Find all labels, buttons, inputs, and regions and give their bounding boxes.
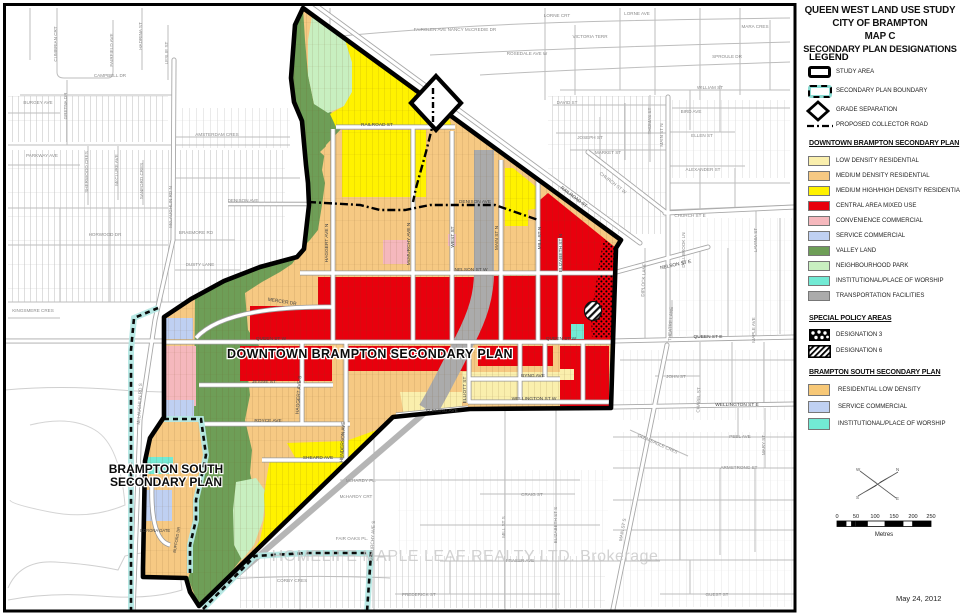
svg-text:KINGSMERE CRES: KINGSMERE CRES bbox=[12, 308, 54, 313]
svg-text:HADRINA ST: HADRINA ST bbox=[138, 22, 143, 50]
svg-text:N: N bbox=[896, 467, 899, 472]
svg-text:SHERWOOD CRES: SHERWOOD CRES bbox=[84, 151, 89, 193]
svg-text:FAIRFIELD AVE: FAIRFIELD AVE bbox=[109, 33, 114, 66]
svg-text:HORWOOD DR: HORWOOD DR bbox=[89, 232, 123, 237]
svg-text:QUEEN ST W: QUEEN ST W bbox=[256, 336, 287, 342]
svg-text:AMSTERDAM CRES: AMSTERDAM CRES bbox=[195, 132, 238, 137]
svg-text:CHURCH ST E: CHURCH ST E bbox=[674, 213, 705, 218]
svg-text:BIRD AVE: BIRD AVE bbox=[681, 109, 702, 114]
svg-text:MAIN ST N: MAIN ST N bbox=[494, 225, 500, 250]
svg-text:NELSON ST W: NELSON ST W bbox=[455, 267, 488, 273]
svg-text:McHARDY PL.: McHARDY PL. bbox=[346, 478, 376, 483]
svg-text:ELLEN ST: ELLEN ST bbox=[691, 133, 713, 138]
svg-text:WILLIAM ST: WILLIAM ST bbox=[697, 85, 723, 90]
svg-text:MARY ST: MARY ST bbox=[761, 435, 766, 455]
svg-text:LORNE CRT: LORNE CRT bbox=[544, 13, 571, 18]
svg-text:BYNG AVE: BYNG AVE bbox=[521, 373, 545, 379]
svg-text:SPROULE DR: SPROULE DR bbox=[712, 54, 743, 59]
svg-text:WELLINGTON ST E: WELLINGTON ST E bbox=[715, 402, 759, 408]
svg-text:MARKET ST: MARKET ST bbox=[595, 150, 621, 155]
svg-text:ELLIOTT ST: ELLIOTT ST bbox=[462, 377, 468, 404]
svg-text:MAIN ST N: MAIN ST N bbox=[659, 123, 664, 146]
svg-text:ROYCE AVE: ROYCE AVE bbox=[254, 418, 281, 424]
svg-text:MARA CRES: MARA CRES bbox=[741, 24, 768, 29]
svg-text:HOMELIFE MAPLE LEAF REALTY LTD: HOMELIFE MAPLE LEAF REALTY LTD. Brokerag… bbox=[272, 548, 659, 565]
svg-text:McLAUGHLIN RD N: McLAUGHLIN RD N bbox=[168, 186, 173, 228]
svg-text:CHAPEL ST: CHAPEL ST bbox=[696, 387, 702, 413]
svg-text:S: S bbox=[856, 495, 859, 500]
svg-text:QUEEN ST E: QUEEN ST E bbox=[694, 334, 723, 340]
svg-text:THOMAS ST: THOMAS ST bbox=[647, 107, 652, 134]
svg-text:FAIRGLEN AVE NANCY McCREDIE: FAIRGLEN AVE NANCY McCREDIE DR bbox=[414, 27, 497, 32]
svg-text:HAGGERT AVE N: HAGGERT AVE N bbox=[324, 223, 330, 262]
svg-text:MAPLE AVE: MAPLE AVE bbox=[751, 317, 756, 342]
svg-text:LORNE AVE: LORNE AVE bbox=[624, 11, 650, 16]
svg-text:DENISON AVE: DENISON AVE bbox=[459, 199, 491, 205]
svg-text:ARMSTRONG ST: ARMSTRONG ST bbox=[720, 465, 757, 470]
svg-text:ROSEDALE AVE W: ROSEDALE AVE W bbox=[507, 51, 548, 56]
svg-text:JOSEPH ST: JOSEPH ST bbox=[577, 135, 603, 140]
svg-text:0: 0 bbox=[835, 514, 838, 520]
svg-text:McHARDY CRT: McHARDY CRT bbox=[340, 494, 373, 499]
svg-text:200: 200 bbox=[908, 514, 917, 520]
svg-text:CAMPBELL DR: CAMPBELL DR bbox=[94, 73, 127, 78]
svg-text:E: E bbox=[896, 496, 899, 501]
svg-text:SANFORD CRES: SANFORD CRES bbox=[139, 163, 144, 200]
svg-text:PEEL AVE: PEEL AVE bbox=[729, 434, 750, 439]
svg-text:McMURCHY AVE N: McMURCHY AVE N bbox=[406, 222, 412, 265]
svg-text:DAVID ST: DAVID ST bbox=[557, 100, 578, 105]
svg-text:250: 250 bbox=[926, 514, 935, 520]
svg-text:JOHN ST: JOHN ST bbox=[666, 374, 686, 379]
svg-text:FLEMING AVE: FLEMING AVE bbox=[426, 408, 458, 414]
svg-text:LAVINIA ST: LAVINIA ST bbox=[753, 228, 758, 252]
svg-text:FAIR OAKS PL.: FAIR OAKS PL. bbox=[336, 536, 368, 541]
svg-text:QUEEN ST W: QUEEN ST W bbox=[546, 336, 577, 342]
svg-text:150: 150 bbox=[889, 514, 898, 520]
svg-text:BRAEMORE RD: BRAEMORE RD bbox=[179, 230, 214, 235]
svg-text:DUSTY LANE: DUSTY LANE bbox=[186, 262, 215, 267]
svg-text:CORBY CRES: CORBY CRES bbox=[277, 578, 307, 583]
svg-text:PARKWAY AVE: PARKWAY AVE bbox=[26, 153, 58, 158]
svg-text:JESSIE ST: JESSIE ST bbox=[252, 379, 276, 385]
svg-text:ELIZABETH ST S: ELIZABETH ST S bbox=[553, 507, 558, 543]
svg-text:CORONA GATE: CORONA GATE bbox=[140, 528, 171, 533]
svg-text:GUEST ST: GUEST ST bbox=[706, 592, 729, 597]
svg-text:RAILROAD ST: RAILROAD ST bbox=[361, 122, 393, 128]
svg-text:SHEARD AVE: SHEARD AVE bbox=[303, 455, 333, 461]
svg-text:VICTORIA TERR: VICTORIA TERR bbox=[572, 34, 608, 39]
svg-text:DENISON AVE: DENISON AVE bbox=[228, 198, 259, 203]
svg-text:FREDERICK ST: FREDERICK ST bbox=[402, 592, 436, 597]
svg-text:GRETNA DR: GRETNA DR bbox=[63, 92, 68, 119]
svg-text:WELLINGTON ST W: WELLINGTON ST W bbox=[512, 396, 557, 402]
svg-text:MILL ST N: MILL ST N bbox=[537, 226, 543, 249]
svg-text:LESLIE ST: LESLIE ST bbox=[164, 41, 169, 64]
svg-text:ELIZABETH ST N: ELIZABETH ST N bbox=[558, 233, 564, 272]
svg-text:100: 100 bbox=[870, 514, 879, 520]
svg-text:CRAIG ST: CRAIG ST bbox=[521, 492, 543, 497]
svg-text:CUMBRIAN CRT: CUMBRIAN CRT bbox=[53, 26, 58, 61]
svg-text:BRAMPTON SOUTH: BRAMPTON SOUTH bbox=[109, 462, 223, 476]
svg-text:Metres: Metres bbox=[875, 532, 893, 538]
svg-text:BURGEY AVE: BURGEY AVE bbox=[23, 100, 52, 105]
svg-text:ALEXANDER ST: ALEXANDER ST bbox=[686, 167, 721, 172]
svg-text:WEST ST: WEST ST bbox=[450, 226, 456, 247]
svg-text:DOWNTOWN BRAMPTON SECONDARY PL: DOWNTOWN BRAMPTON SECONDARY PLAN bbox=[227, 347, 513, 361]
svg-text:McCLURE AVE: McCLURE AVE bbox=[114, 154, 119, 186]
svg-text:50: 50 bbox=[853, 514, 859, 520]
svg-text:SECONDARY PLAN: SECONDARY PLAN bbox=[110, 475, 222, 489]
svg-text:MILL ST S: MILL ST S bbox=[501, 516, 506, 537]
